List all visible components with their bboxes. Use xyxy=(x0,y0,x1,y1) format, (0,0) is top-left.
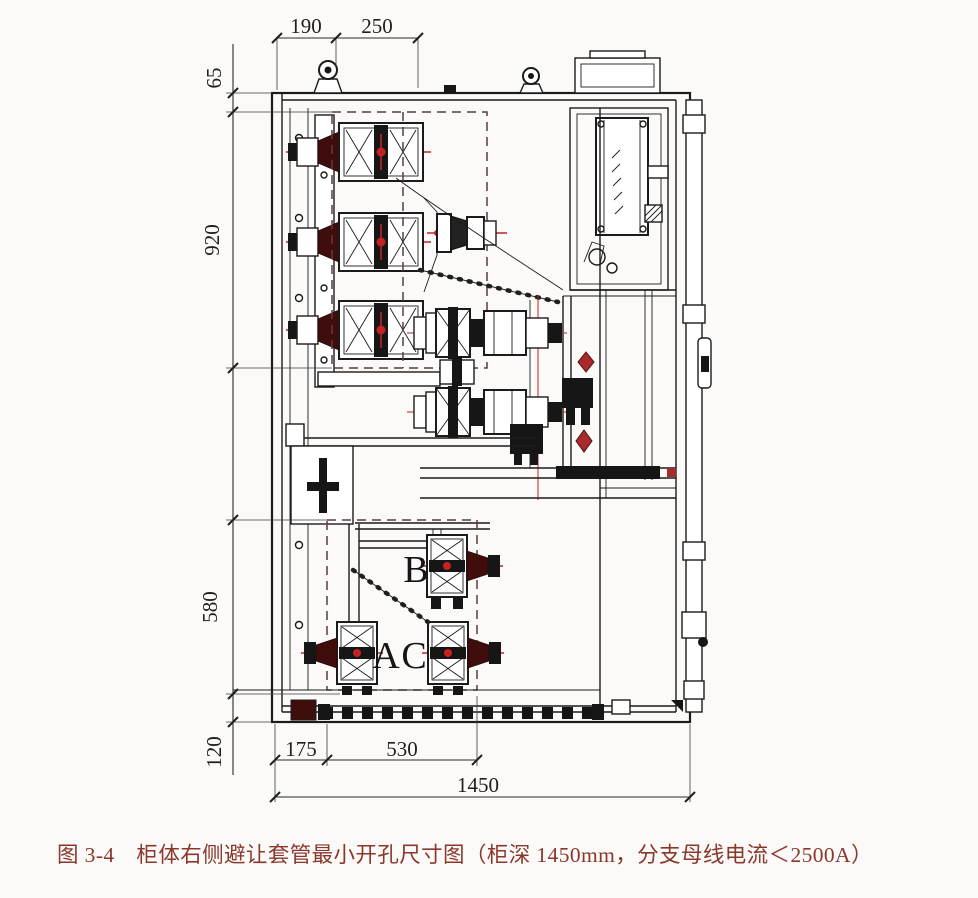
dim-left-120: 120 xyxy=(202,736,226,768)
lower-left-duct xyxy=(286,424,540,622)
bushing-c xyxy=(422,622,504,684)
dim-bottom-1450: 1450 xyxy=(457,773,499,797)
dim-left-580: 580 xyxy=(198,591,222,623)
hinge-4 xyxy=(682,612,706,638)
dim-left-65: 65 xyxy=(202,68,226,89)
roof-parts xyxy=(314,51,660,93)
right-door xyxy=(682,100,711,712)
hinge-2 xyxy=(683,305,705,323)
breaker-pole-upper xyxy=(407,307,567,359)
lower-bushing-group: A C B xyxy=(301,535,504,695)
bus-joint-red xyxy=(667,468,676,477)
hinge-3 xyxy=(683,542,705,560)
hinge-1 xyxy=(683,115,705,133)
lifting-lug-base xyxy=(314,79,342,93)
cabinet-side-view-drawing: A C B 190 250 xyxy=(0,0,978,898)
drawing-canvas: A C B 190 250 xyxy=(0,0,978,898)
bushing-a xyxy=(301,622,383,684)
dim-left-920: 920 xyxy=(200,224,224,256)
section-marker-upper xyxy=(578,352,594,372)
instrument-compartment xyxy=(570,108,668,290)
phase-label-c: C xyxy=(401,635,426,677)
hinge-5 xyxy=(684,681,704,699)
rail-hatch-strip xyxy=(322,707,598,719)
dim-top-250: 250 xyxy=(361,14,393,38)
phase-label-a: A xyxy=(372,635,400,677)
dim-bottom-175: 175 xyxy=(285,737,317,761)
bushing-b xyxy=(421,535,503,597)
dim-bottom-530: 530 xyxy=(386,737,418,761)
section-marker-lower xyxy=(576,430,592,452)
dim-top-190: 190 xyxy=(290,14,322,38)
cable-clamp-maroon xyxy=(291,700,316,720)
figure-caption: 图 3-4 柜体右侧避让套管最小开孔尺寸图（柜深 1450mm，分支母线电流＜2… xyxy=(57,838,937,869)
phase-label-b: B xyxy=(403,549,428,591)
feeder-bushing xyxy=(427,214,507,252)
